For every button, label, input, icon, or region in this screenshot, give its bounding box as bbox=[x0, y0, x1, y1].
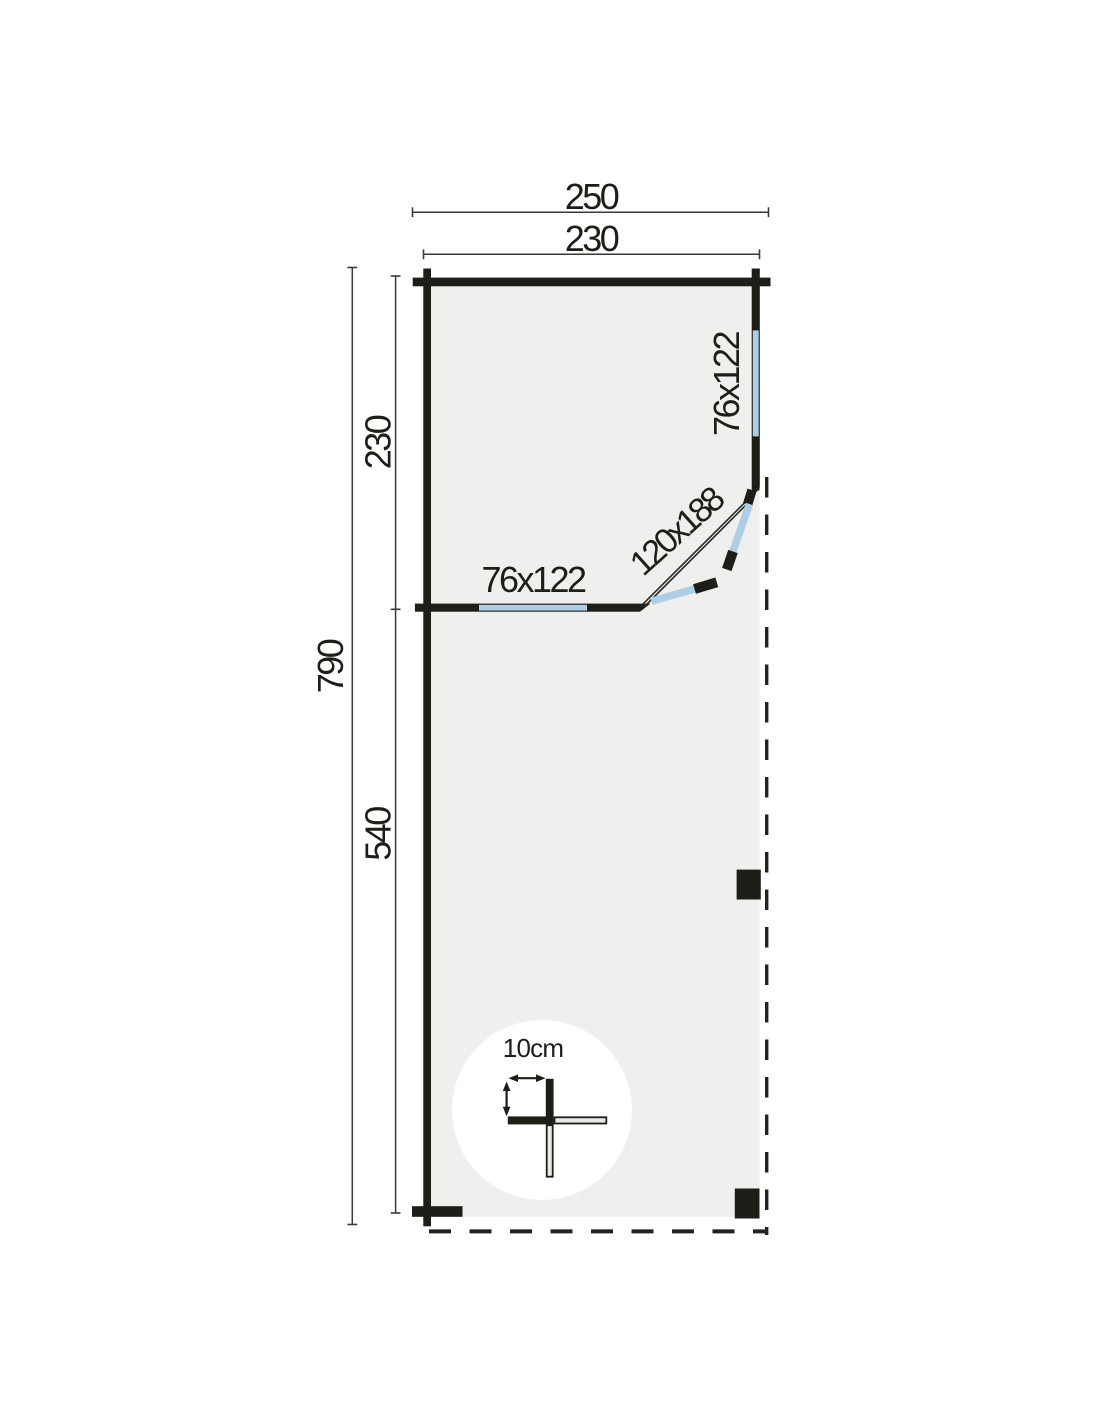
svg-text:790: 790 bbox=[310, 639, 351, 693]
svg-text:540: 540 bbox=[358, 807, 399, 861]
svg-text:230: 230 bbox=[565, 218, 619, 259]
svg-text:76x122: 76x122 bbox=[481, 559, 586, 600]
svg-text:76x122: 76x122 bbox=[706, 331, 747, 436]
svg-text:230: 230 bbox=[358, 415, 399, 469]
svg-text:250: 250 bbox=[565, 176, 619, 217]
svg-text:10cm: 10cm bbox=[503, 1033, 563, 1063]
